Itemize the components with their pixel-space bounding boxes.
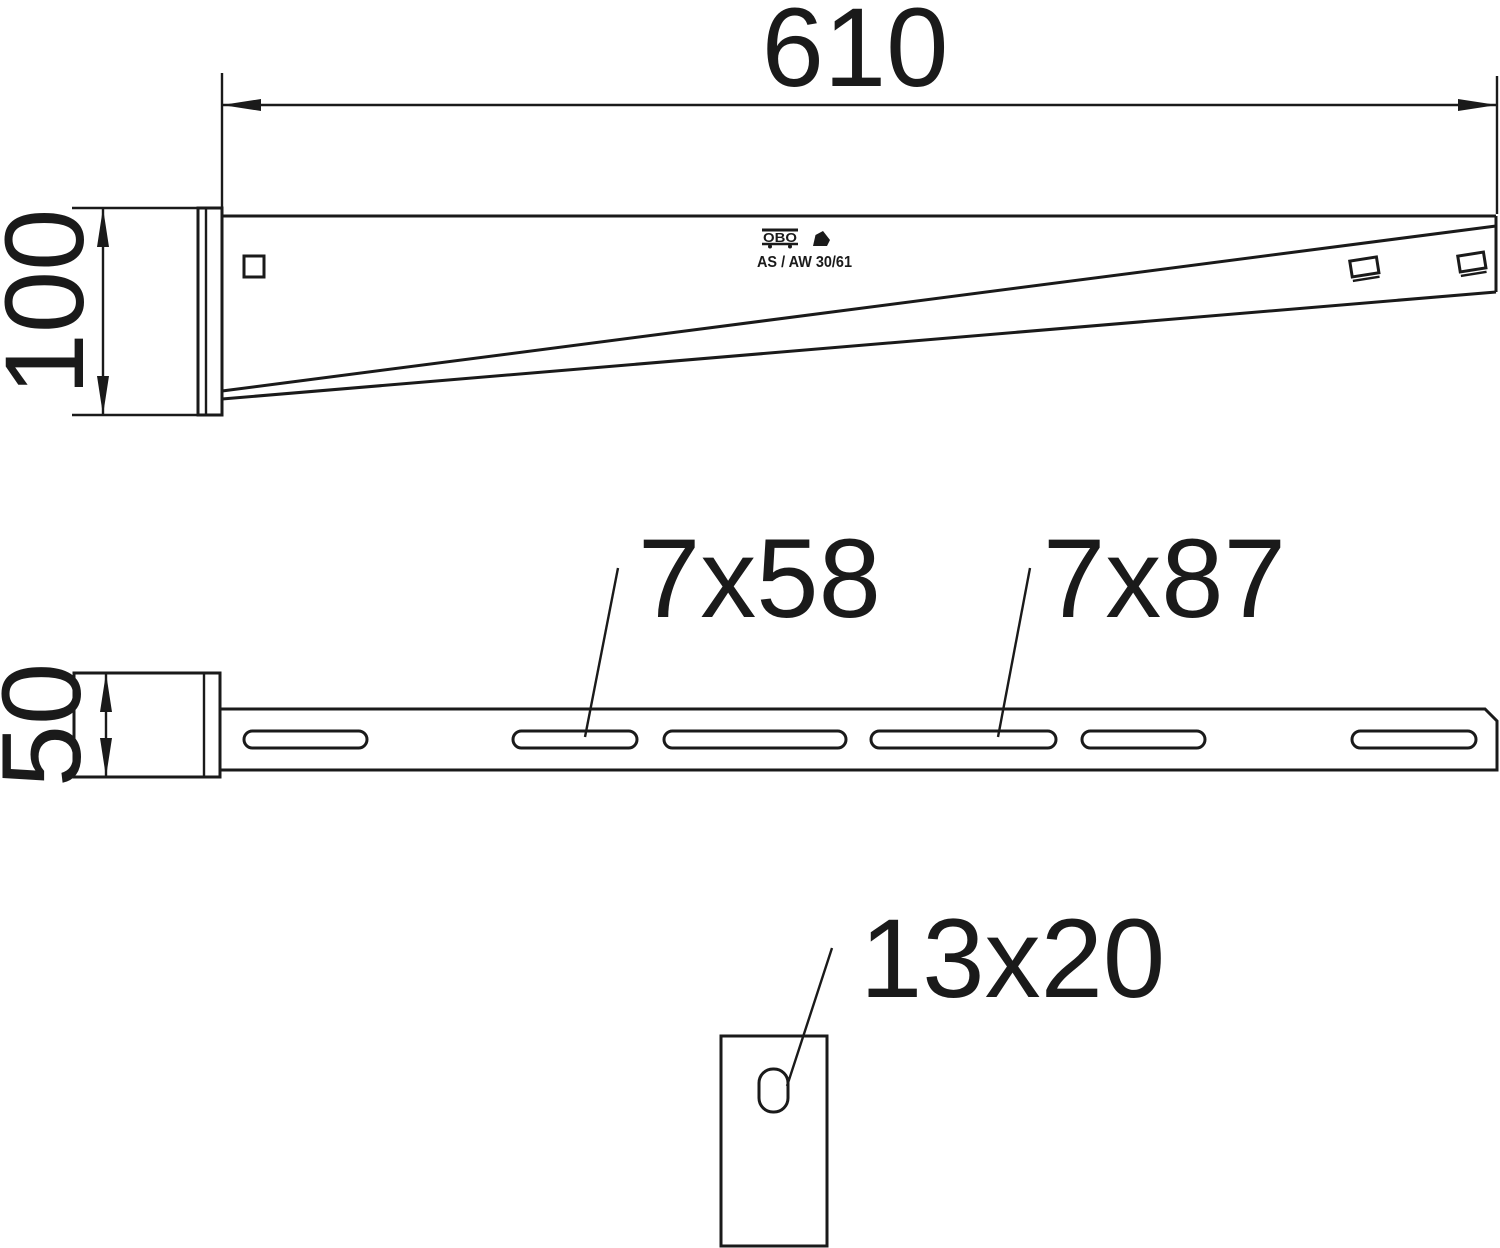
- callout-7x87: 7x87: [998, 516, 1286, 737]
- anchor-plate-view: 13x20: [721, 896, 1165, 1246]
- callout-13x20-label: 13x20: [860, 896, 1165, 1021]
- dim-100-label: 100: [0, 209, 107, 396]
- obo-logo-wheel-left: [768, 245, 772, 249]
- obo-logo-icon: OBO: [762, 230, 798, 249]
- dim-610-arrow-left: [222, 99, 261, 111]
- dim-50-label: 50: [0, 663, 104, 788]
- plan-arm-outline: [220, 709, 1497, 770]
- side-tab-1-face: [1350, 257, 1379, 277]
- stamp: OBO AS / AW 30/61: [757, 230, 852, 271]
- slot-4-87: [871, 731, 1056, 748]
- slot-1-58: [244, 731, 367, 748]
- side-view: OBO AS / AW 30/61 610 100: [0, 0, 1497, 415]
- callout-7x87-label: 7x87: [1043, 516, 1286, 641]
- dimension-610: 610: [222, 0, 1497, 214]
- callout-7x58: 7x58: [585, 516, 881, 737]
- roof-mark-icon: [813, 231, 830, 246]
- dimension-50: 50: [0, 663, 112, 788]
- side-wall-plate: [198, 208, 222, 415]
- slot-5-58: [1082, 731, 1205, 748]
- callout-13x20: 13x20: [787, 896, 1165, 1086]
- plan-view: 50 7x58 7x87: [0, 516, 1497, 787]
- anchor-plate-oblong-hole: [759, 1069, 788, 1112]
- obo-logo-wheel-right: [788, 245, 792, 249]
- bracket-drawing-canvas: OBO AS / AW 30/61 610 100: [0, 0, 1500, 1248]
- side-tab-2-face: [1458, 252, 1486, 272]
- side-tab-2: [1458, 252, 1487, 276]
- dimension-100: 100: [0, 208, 207, 415]
- slot-3-87: [664, 731, 846, 748]
- technical-drawing-page: OBO AS / AW 30/61 610 100: [0, 0, 1500, 1248]
- dim-610-label: 610: [762, 0, 949, 110]
- dim-610-arrow-right: [1458, 99, 1497, 111]
- stamp-model-text: AS / AW 30/61: [757, 254, 852, 271]
- slot-2-58: [513, 731, 637, 748]
- side-square-hole: [244, 256, 264, 277]
- callout-7x58-label: 7x58: [638, 516, 881, 641]
- side-tab-1: [1350, 257, 1380, 281]
- slot-6-58: [1352, 731, 1476, 748]
